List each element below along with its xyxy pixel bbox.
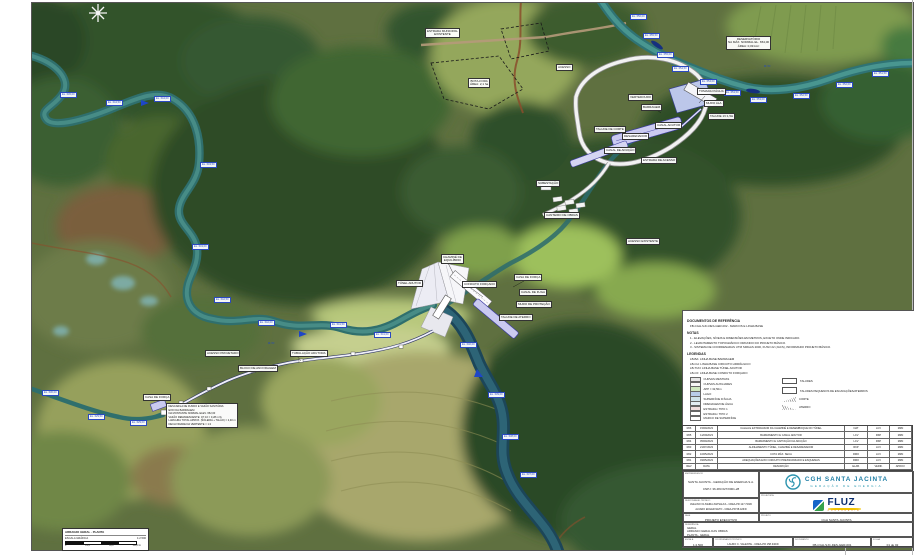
owner-cell: EMPREENDEDOR SANTA JACINTA - GERAÇÃO DE … <box>683 471 759 498</box>
drawing-sheet: ESTRADA MUNICIPALEXISTENTEACESSOBOTA-FOR… <box>0 0 915 555</box>
legend-swatch-label: DRENAGEM DE ÁGUA <box>704 402 734 406</box>
legend-swatch <box>690 416 701 421</box>
escala-cell: ESCALA 1:2.500 <box>683 537 713 548</box>
responsible-cell: RESPONSÁVEL TÉCNICO AVELINO OLIVEIRA ZAP… <box>683 498 759 513</box>
scale-bar-segment <box>101 542 119 544</box>
folha-cell: FOLHA 01 de 02 <box>871 537 914 548</box>
scale-bar-segment <box>66 542 84 544</box>
note-item: 3 - SISTEMA DE COORDENADAS UTM SIRGAS 20… <box>690 345 909 349</box>
folha-value: 01 de 02 <box>872 543 913 548</box>
fase-header: FASE <box>685 515 690 517</box>
legend-swatch-row: MARCO DE SUPERFÍCIE <box>690 416 909 421</box>
legend-right-label: CORTE <box>799 397 809 401</box>
notes-list: 1 - ELEVAÇÕES, NÍVEIS E DIMENSÕES EM MET… <box>687 336 909 349</box>
talude-swatch <box>782 378 797 385</box>
talude-swatch <box>782 387 797 394</box>
title-block: EMPREENDEDOR SANTA JACINTA - GERAÇÃO DE … <box>682 470 913 547</box>
escala-header: ESCALA <box>685 539 693 541</box>
folha-header: FOLHA <box>873 539 880 541</box>
fluz-logo-name: FLUZ <box>828 498 861 508</box>
scale-box: ARRANJO GERAL - PLANTA ESCALA GRÁFICA 1:… <box>62 528 149 551</box>
legend-right-column: TALUDESTALUDES PEQUENOS DE ESCAVAÇÕES/AT… <box>782 378 902 413</box>
responsible-header: RESPONSÁVEL TÉCNICO <box>685 500 710 502</box>
responsible-line1: AVELINO OLIVEIRA ZAPSALKA - CREA-PR 127.… <box>684 503 758 507</box>
scale-graphic-label: ESCALA GRÁFICA <box>65 537 88 540</box>
projetista-header: PROJETISTA <box>761 495 774 497</box>
projeto-header: PROJETO <box>761 515 771 517</box>
fluz-logo-cell: PROJETISTA FLUZ ENGENHARIA <box>759 493 914 513</box>
responsible-line2: ALVARO ENGER NETO - CREA-PR 58.426/D <box>684 508 758 512</box>
scale-number: 0 <box>65 545 66 547</box>
legend-right-label: ATERRO <box>799 405 810 409</box>
scale-number: 100,0 m <box>133 545 141 547</box>
documento-value: FB-CGH-SJC-DES-GER-001 <box>794 543 870 548</box>
owner-line2: CNPJ: 36.483.627/0001-28 <box>684 487 758 492</box>
projeto-cell: PROJETO CGH SANTA JACINTA <box>759 513 914 522</box>
legend-swatches: CURVAS MESTRASCURVAS AUXILIARESAPP = 32,… <box>687 377 909 425</box>
corte-symbol <box>782 397 796 402</box>
coordenador-value: LAURO C. VALENTE - CREA-PR 158.340/D <box>714 543 792 547</box>
legend-swatch-label: ESTRADA / TIPO 2 <box>704 412 728 416</box>
fluz-logo-subtitle: ENGENHARIA <box>828 510 861 512</box>
references-title: DOCUMENTOS DE REFERÊNCIA <box>687 319 909 323</box>
legend-swatch-label: CURVAS AUXILIARES <box>704 382 733 386</box>
documento-cell: DOCUMENTO FB-CGH-SJC-DES-GER-001 <box>793 537 871 548</box>
scale-bar-segment <box>84 542 102 544</box>
revision-table: R0615/09/2023CALHA E EXTRAVASOR DA CHAMI… <box>682 425 913 470</box>
legend-right-row: TALUDES PEQUENOS DE ESCAVAÇÕES/ATERROS <box>782 387 902 394</box>
cgh-logo-cell: CGH SANTA JACINTA GERAÇÃO DE ENERGIA <box>759 471 914 493</box>
legend-swatch-label: MARCO DE SUPERFÍCIE <box>704 416 737 420</box>
legend-right-label: TALUDES PEQUENOS DE ESCAVAÇÕES/ATERROS <box>800 389 868 393</box>
scale-number: 25,0 <box>85 545 89 547</box>
cgh-logo-icon <box>785 474 801 490</box>
coordenador-header: COORDENADOR TÉCNICO <box>715 539 742 541</box>
cgh-logo-tagline: GERAÇÃO DE ENERGIA <box>805 484 888 488</box>
legend-swatch-label: LAGO <box>704 392 712 396</box>
legend-right-row: TALUDES <box>782 378 902 385</box>
notes-title: NOTAS <box>687 331 909 335</box>
legend-swatch-label: APP = 32,50m <box>704 387 722 391</box>
documento-header: DOCUMENTO <box>795 539 809 541</box>
legend-baseline-item: LB-CF: LINHA BASE CONDUTO FORÇADO <box>690 371 909 375</box>
scale-bar <box>65 541 137 545</box>
scale-number: 50,0 <box>109 545 113 547</box>
fluz-logo-icon <box>813 500 824 511</box>
legend-baseline-list: LB-BA: LINHA BASE BARRAGEMLB-CH: LINHA B… <box>687 357 909 374</box>
scale-bar-numbers: 025,050,0100,0 m <box>65 545 141 547</box>
legend-right-label: TALUDES <box>800 379 813 383</box>
scale-value: 1:2.500 <box>137 537 146 540</box>
legend-right-row: ATERRO <box>782 405 902 410</box>
referencia-cell: REFERÊNCIA GERAL ARRANJO GERAL DAS OBRAS… <box>683 522 914 537</box>
fase-cell: FASE PROJETO EXECUTIVO <box>683 513 759 522</box>
legend-right-row: CORTE <box>782 397 902 402</box>
legend-title: LEGENDAS <box>687 352 909 356</box>
scale-box-title: ARRANJO GERAL - PLANTA <box>65 530 146 536</box>
reference-item: FB-CGH-SJC-DES-GER-002 - MARCOS E LINHA … <box>690 324 909 328</box>
owner-line1: SANTA JACINTA - GERAÇÃO DE ENERGIA S.A. <box>684 480 758 485</box>
scale-bar-segment <box>119 542 137 544</box>
coordenador-cell: COORDENADOR TÉCNICO LAURO C. VALENTE - C… <box>713 537 793 548</box>
owner-header: EMPREENDEDOR <box>685 473 703 475</box>
escala-value: 1:2.500 <box>684 543 712 548</box>
legend-swatch-label: CURVAS MESTRAS <box>704 377 730 381</box>
aterro-symbol <box>782 405 796 410</box>
cgh-logo-name: CGH SANTA JACINTA <box>805 476 888 483</box>
legend-swatch-label: SUPERFÍCIE D'ÁGUA <box>704 397 732 401</box>
legend-swatch-label: ESTRADA / TIPO 1 <box>704 407 728 411</box>
